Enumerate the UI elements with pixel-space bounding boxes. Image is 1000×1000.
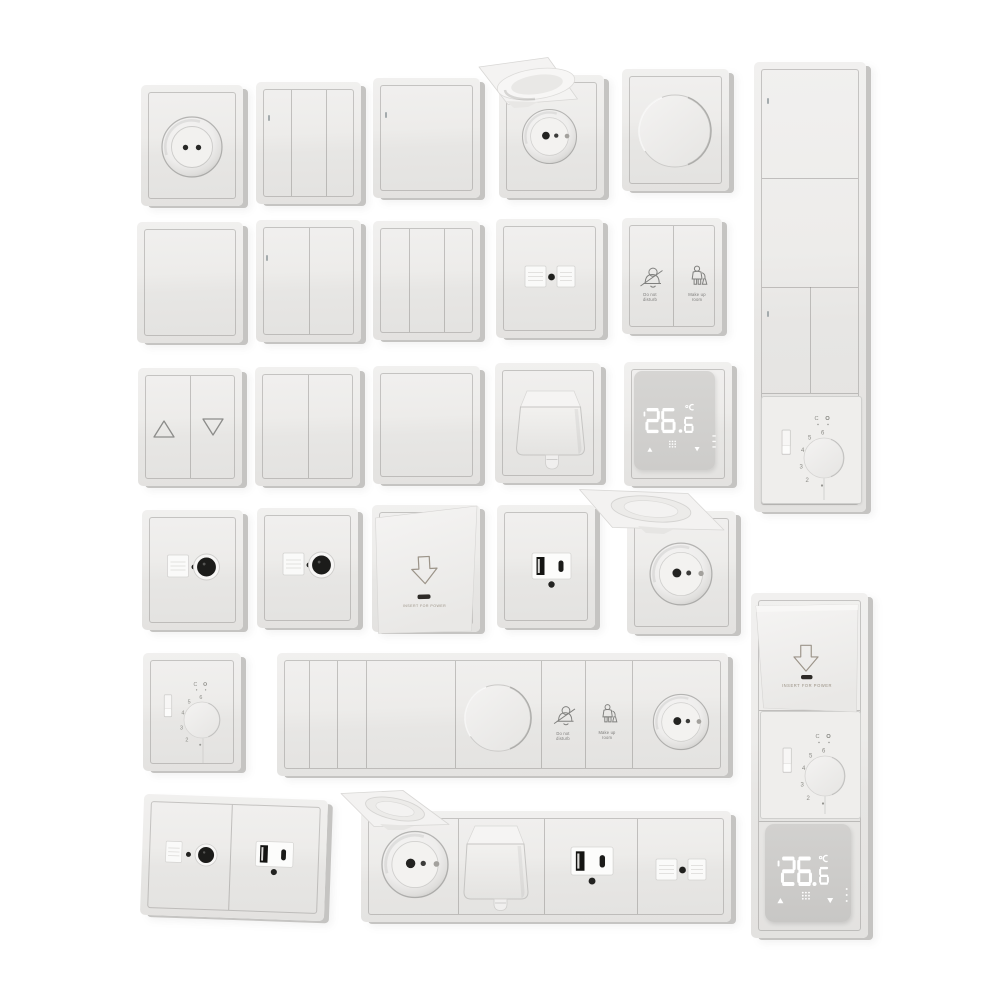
svg-text:INSERT FOR POWER: INSERT FOR POWER (782, 683, 832, 688)
svg-text:INSERT FOR POWER: INSERT FOR POWER (403, 604, 446, 608)
